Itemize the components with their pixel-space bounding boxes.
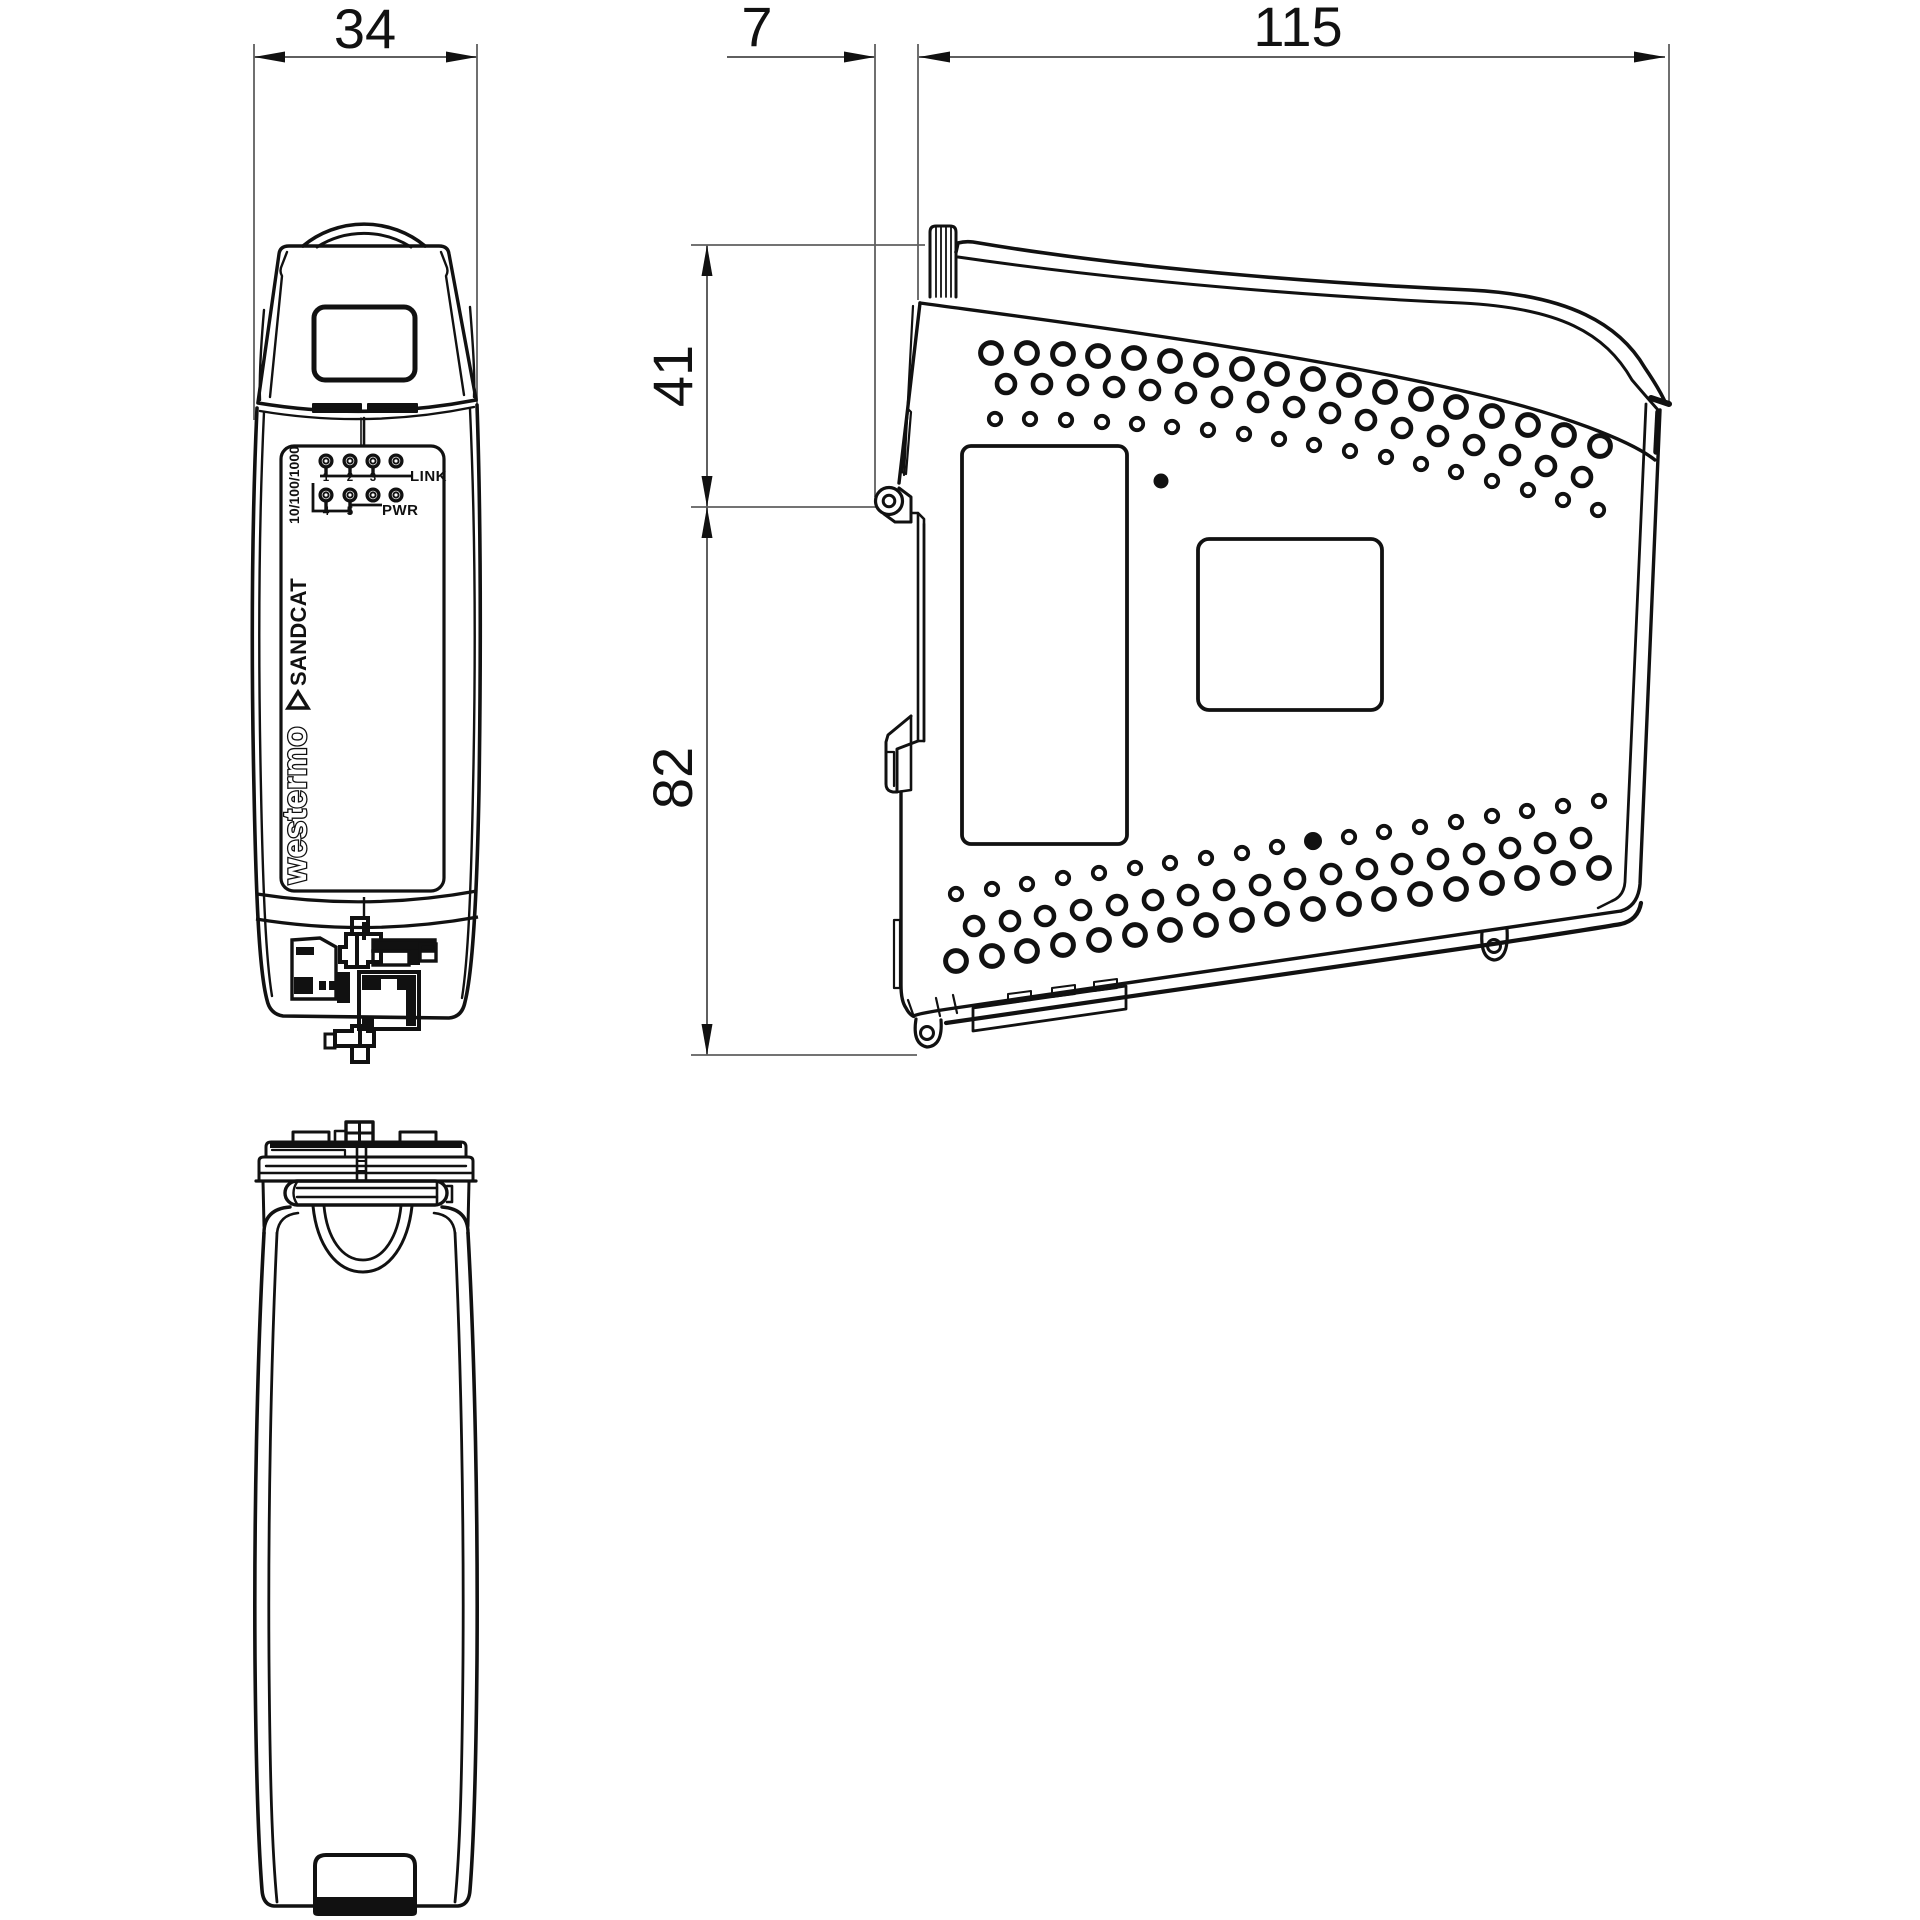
svg-text:SANDCAT: SANDCAT (286, 578, 311, 686)
svg-text:5: 5 (347, 506, 354, 518)
svg-text:2: 2 (347, 472, 353, 484)
svg-text:4: 4 (323, 506, 330, 518)
svg-text:3: 3 (370, 472, 376, 484)
svg-text:PWR: PWR (382, 502, 419, 519)
svg-text:82: 82 (641, 747, 704, 809)
svg-text:7: 7 (741, 0, 772, 58)
svg-text:41: 41 (641, 345, 704, 407)
svg-text:34: 34 (334, 0, 396, 60)
svg-text:115: 115 (1253, 0, 1342, 58)
svg-text:10/100/1000: 10/100/1000 (286, 446, 302, 524)
svg-text:LINK: LINK (410, 468, 447, 485)
svg-text:1: 1 (323, 472, 330, 484)
svg-text:westermo: westermo (276, 726, 313, 885)
